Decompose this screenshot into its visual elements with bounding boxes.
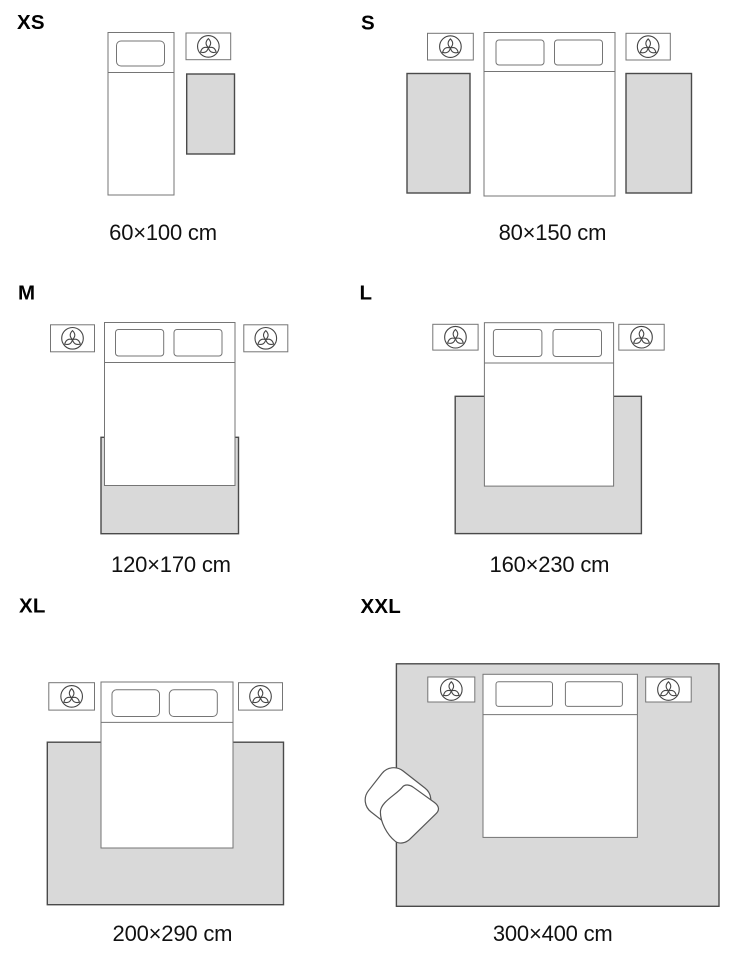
svg-text:L: L — [360, 282, 373, 305]
svg-text:XS: XS — [17, 11, 45, 34]
svg-text:60×100 cm: 60×100 cm — [109, 220, 217, 245]
svg-text:160×230 cm: 160×230 cm — [490, 552, 610, 577]
svg-text:200×290 cm: 200×290 cm — [113, 921, 233, 946]
svg-text:300×400 cm: 300×400 cm — [493, 921, 613, 946]
svg-text:80×150 cm: 80×150 cm — [499, 220, 607, 245]
svg-text:S: S — [361, 12, 375, 35]
svg-text:XL: XL — [19, 595, 46, 618]
svg-text:M: M — [18, 282, 35, 305]
svg-text:XXL: XXL — [361, 595, 401, 618]
svg-text:120×170 cm: 120×170 cm — [111, 552, 231, 577]
